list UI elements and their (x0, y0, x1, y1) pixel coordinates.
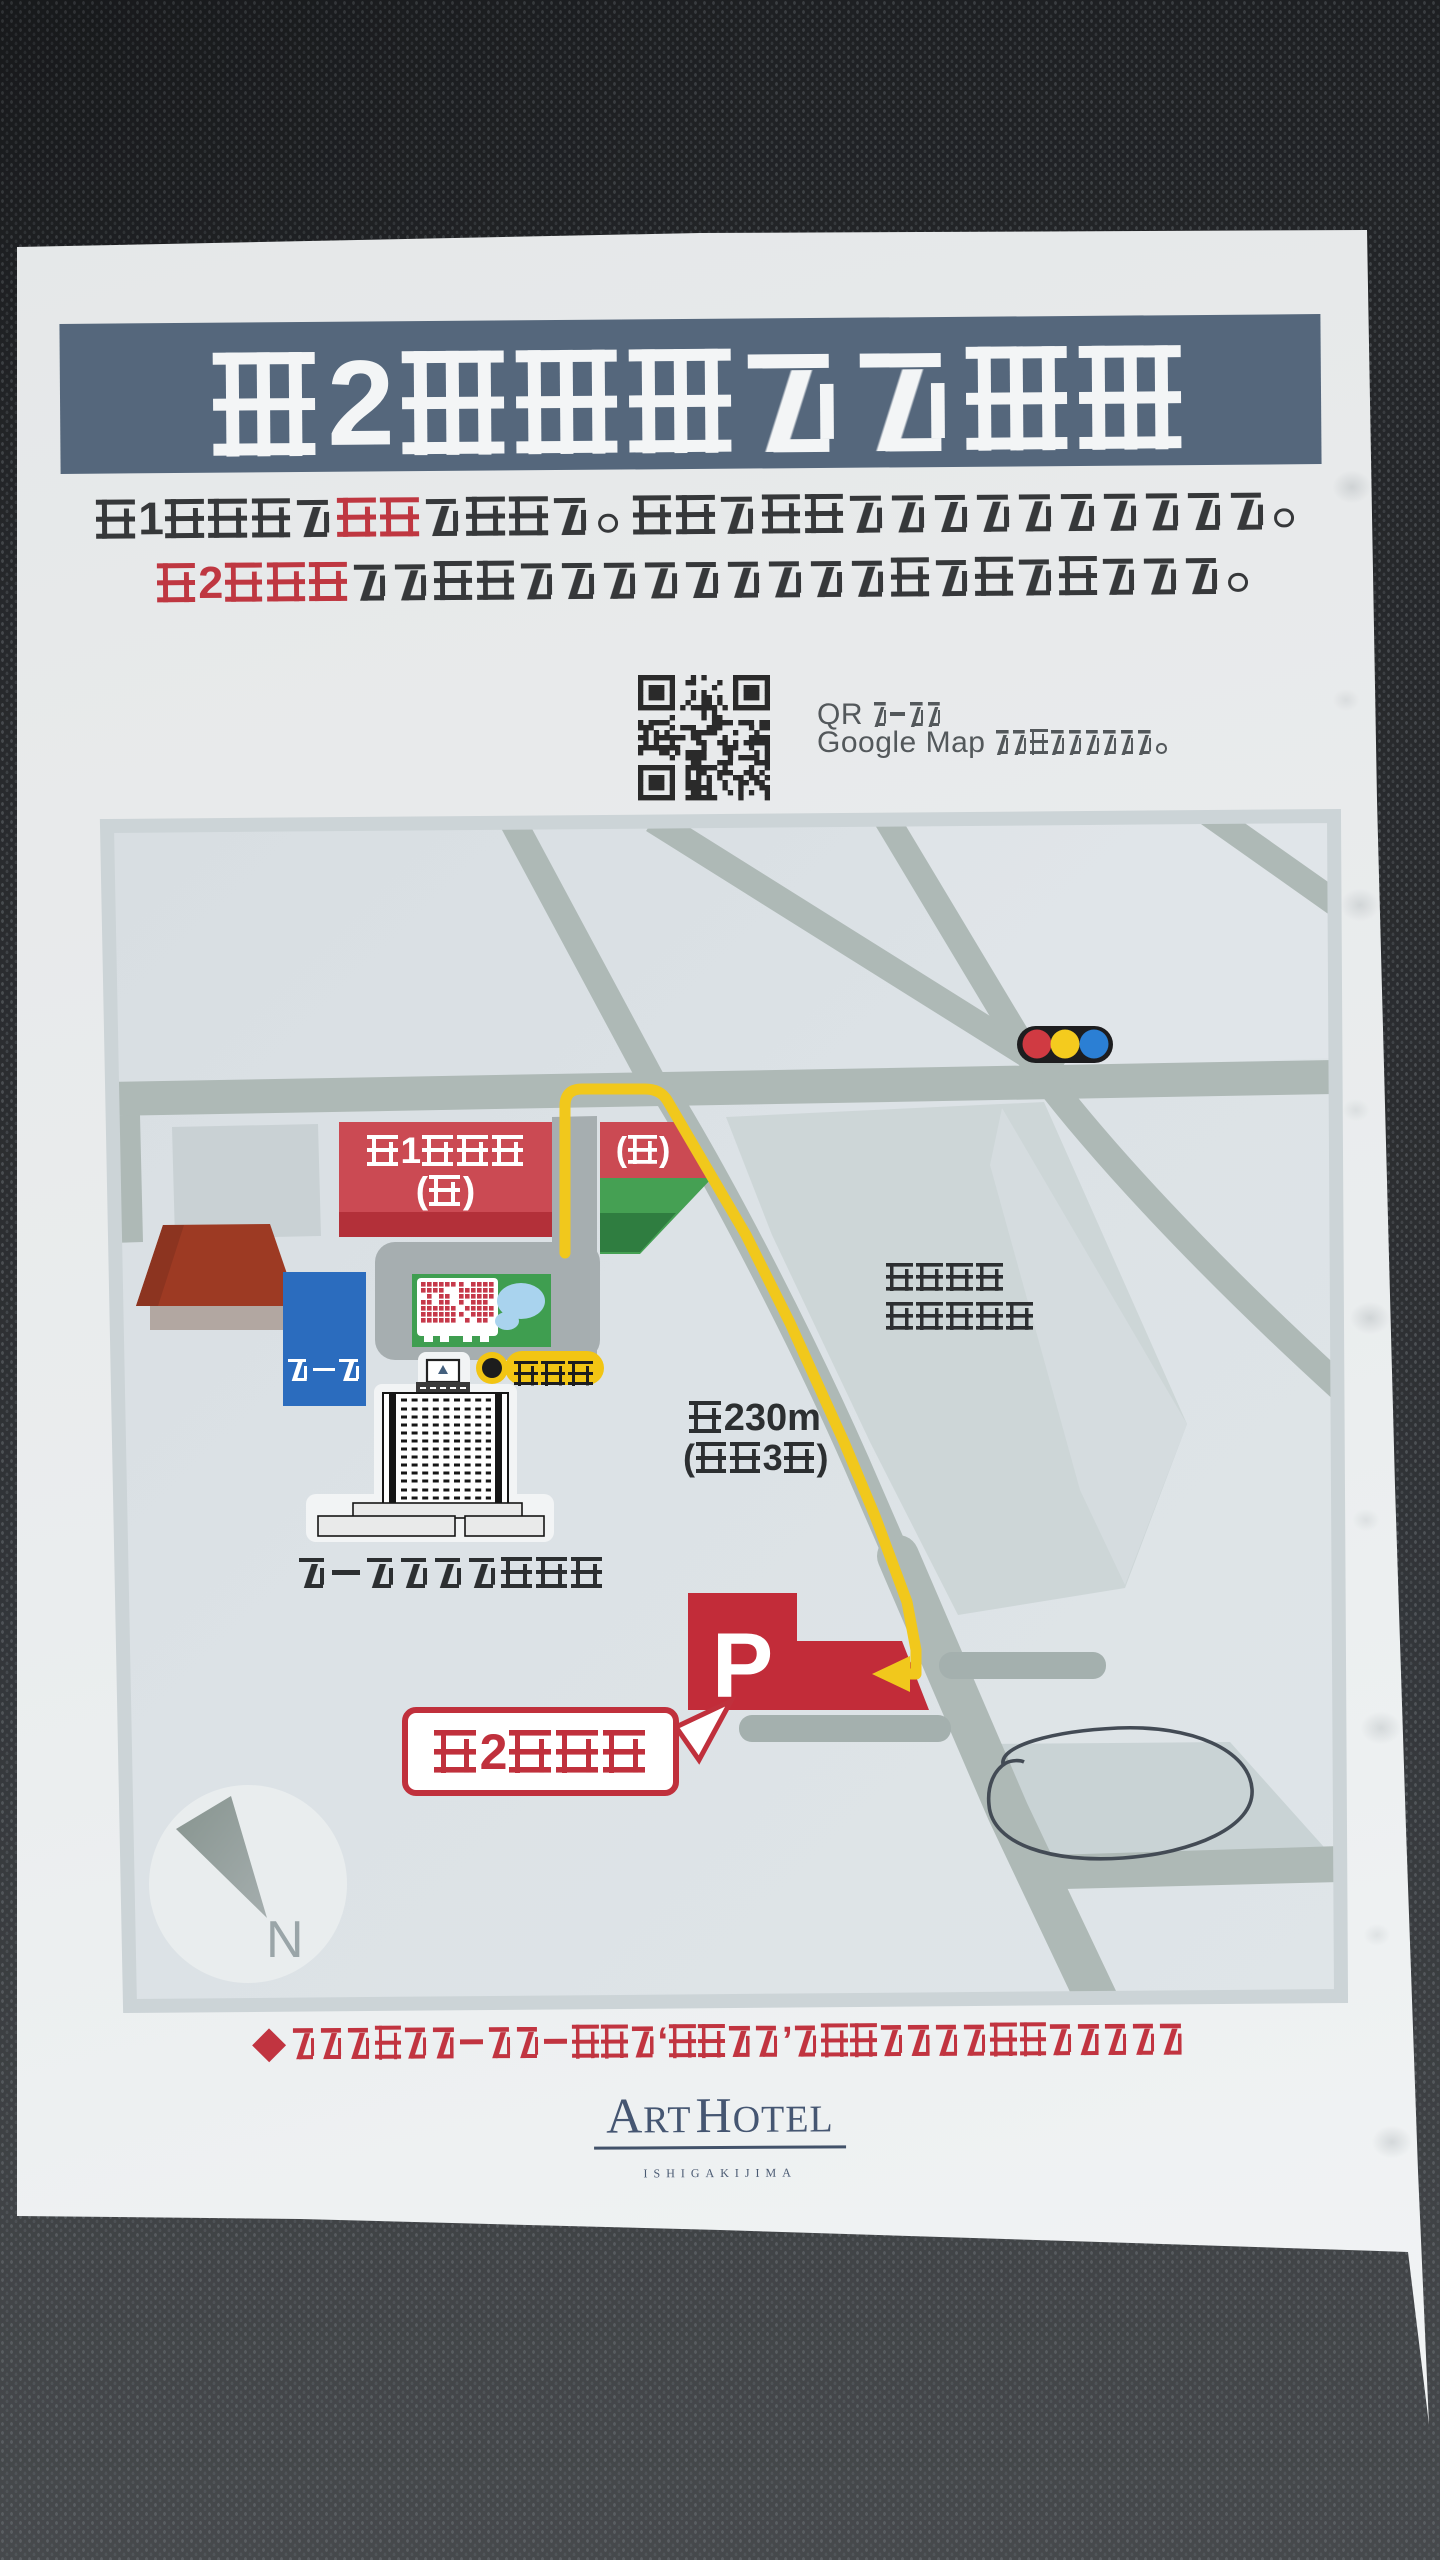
svg-text:N: N (266, 1911, 304, 1969)
